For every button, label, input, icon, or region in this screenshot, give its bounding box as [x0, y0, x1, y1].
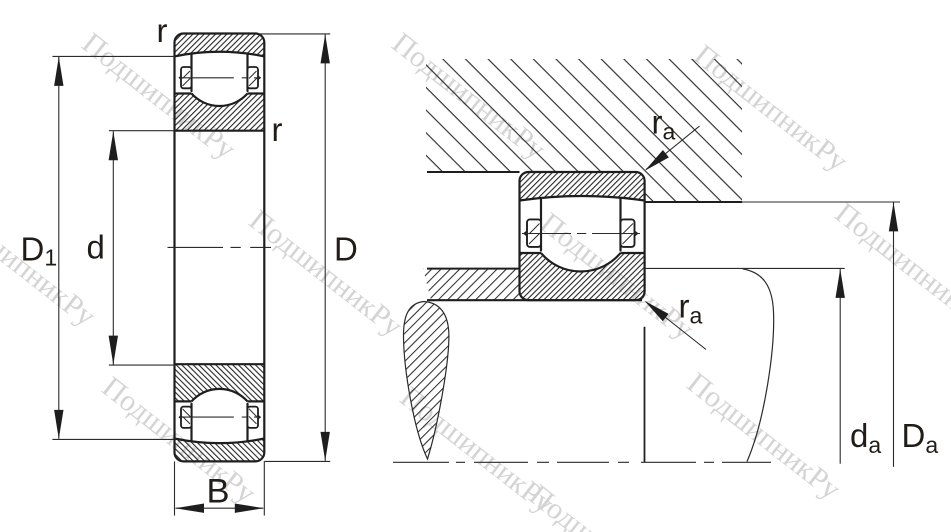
svg-text:r: r — [272, 111, 283, 148]
svg-text:Da: Da — [902, 417, 939, 458]
svg-text:ПодшипникРу: ПодшипникРу — [829, 196, 951, 336]
svg-text:ПодшипникРу: ПодшипникРу — [523, 478, 689, 532]
svg-text:ПодшипникРу: ПодшипникРу — [681, 366, 847, 506]
svg-text:da: da — [850, 417, 881, 458]
svg-text:ra: ra — [679, 288, 703, 329]
svg-text:d: d — [87, 228, 105, 265]
svg-text:ПодшипникРу: ПодшипникРу — [243, 203, 409, 343]
svg-text:B: B — [207, 473, 230, 511]
svg-text:D1: D1 — [21, 231, 58, 271]
svg-text:r: r — [157, 12, 168, 49]
svg-text:D: D — [334, 231, 358, 268]
